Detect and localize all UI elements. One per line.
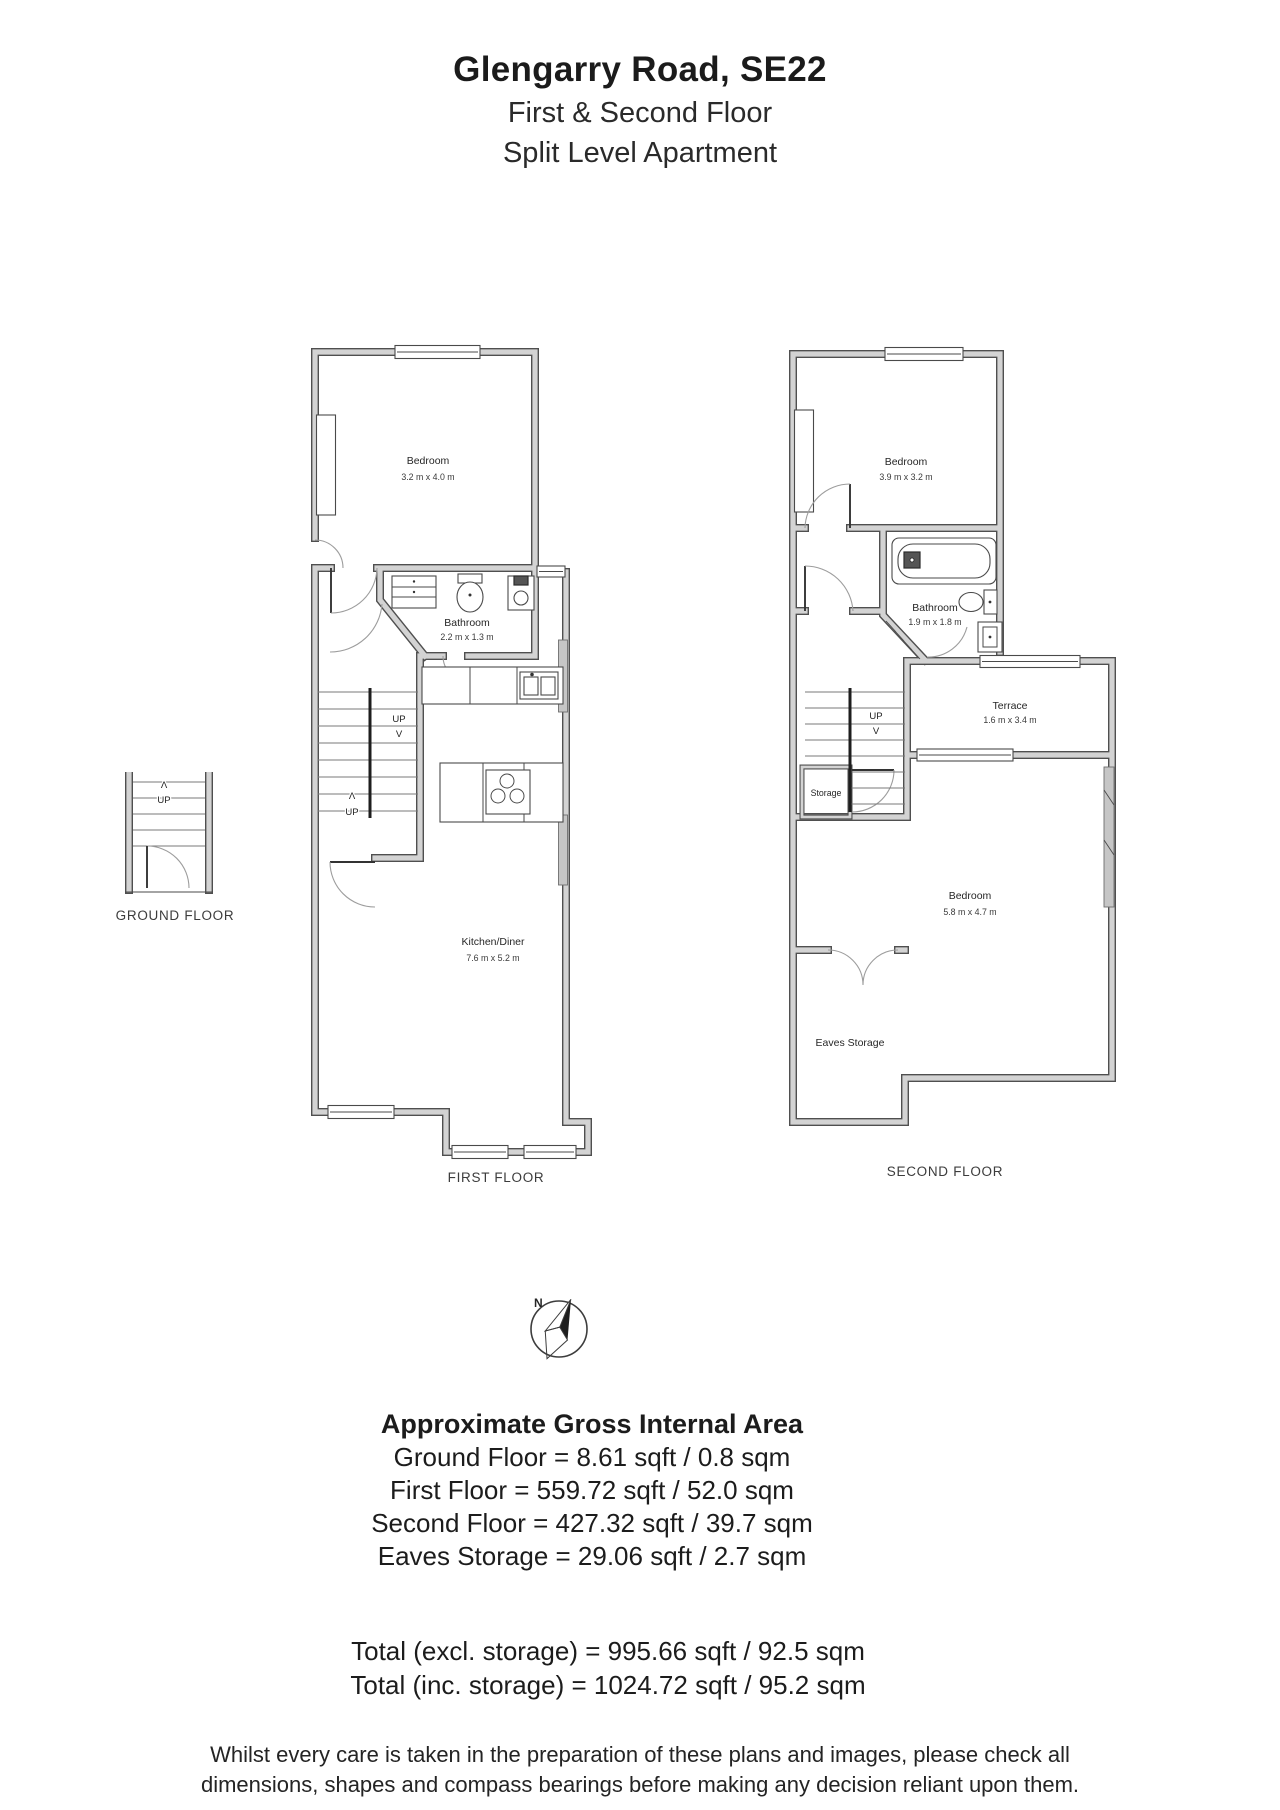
- stairs-up-label: UP: [869, 711, 882, 722]
- floor-plan-second: Bedroom 3.9 m x 3.2 m Bathroom 1.9 m x 1…: [680, 300, 1130, 1180]
- total-inc-storage: Total (inc. storage) = 1024.72 sqft / 95…: [0, 1668, 1216, 1702]
- kitchen-island: [440, 763, 563, 822]
- room-dims-bedroom: 3.2 m x 4.0 m: [401, 472, 454, 482]
- room-label-kitchen: Kitchen/Diner: [461, 936, 525, 948]
- compass-icon: N: [520, 1290, 598, 1368]
- stairs-up-label: UP: [392, 714, 405, 725]
- vanity-icon: [392, 576, 436, 608]
- room-label-storage: Storage: [811, 788, 842, 798]
- wardrobe: [795, 410, 814, 512]
- stairs: [318, 688, 418, 818]
- room-dims-bedroom-front: 3.9 m x 3.2 m: [879, 472, 932, 482]
- stairs: [133, 782, 205, 846]
- stairs-up-label: UP: [157, 795, 170, 806]
- room-dims-terrace: 1.6 m x 3.4 m: [983, 715, 1036, 725]
- first-floor-label: FIRST FLOOR: [448, 1170, 545, 1185]
- eaves-window-slab: [1104, 767, 1114, 907]
- room-label-eaves-storage: Eaves Storage: [816, 1037, 885, 1049]
- kitchen-counter: [422, 667, 563, 704]
- title-block: Glengarry Road, SE22 First & Second Floo…: [0, 50, 1280, 170]
- area-summary-heading: Approximate Gross Internal Area: [0, 1408, 1184, 1441]
- room-dims-kitchen: 7.6 m x 5.2 m: [466, 953, 519, 963]
- sink-icon: [508, 576, 534, 610]
- ground-floor-label: GROUND FLOOR: [116, 908, 235, 923]
- floor-plan-ground: Λ UP: [122, 772, 217, 897]
- area-line-second: Second Floor = 427.32 sqft / 39.7 sqm: [0, 1507, 1184, 1540]
- bathtub-icon: [892, 538, 996, 584]
- stairs-up-label-2: UP: [345, 807, 358, 818]
- disclaimer: Whilst every care is taken in the prepar…: [0, 1740, 1280, 1800]
- room-dims-bathroom: 2.2 m x 1.3 m: [440, 632, 493, 642]
- wardrobe: [317, 415, 336, 515]
- area-line-eaves: Eaves Storage = 29.06 sqft / 2.7 sqm: [0, 1540, 1184, 1573]
- door-arc: [147, 846, 189, 888]
- room-label-bathroom: Bathroom: [444, 617, 490, 629]
- walls: [793, 354, 1112, 1122]
- area-totals: Total (excl. storage) = 995.66 sqft / 92…: [0, 1634, 1216, 1702]
- disclaimer-line-2: dimensions, shapes and compass bearings …: [0, 1770, 1280, 1800]
- stairs-arrow-up: Λ: [161, 780, 168, 791]
- second-floor-label: SECOND FLOOR: [887, 1164, 1003, 1179]
- room-dims-bathroom: 1.9 m x 1.8 m: [908, 617, 961, 627]
- toilet-icon: [959, 590, 997, 614]
- total-excl-storage: Total (excl. storage) = 995.66 sqft / 92…: [0, 1634, 1216, 1668]
- area-line-ground: Ground Floor = 8.61 sqft / 0.8 sqm: [0, 1441, 1184, 1474]
- room-label-bedroom-rear: Bedroom: [949, 890, 992, 902]
- stairs-arrow-down: V: [396, 729, 403, 740]
- room-label-bedroom: Bedroom: [407, 455, 450, 467]
- toilet-icon: [457, 574, 483, 612]
- room-dims-bedroom-rear: 5.8 m x 4.7 m: [943, 907, 996, 917]
- room-label-bathroom: Bathroom: [912, 602, 958, 614]
- cabinet-icon: [978, 622, 1002, 652]
- stairs-arrow-down: V: [873, 726, 880, 737]
- compass-north-label: N: [534, 1296, 543, 1310]
- floorplan-page: Glengarry Road, SE22 First & Second Floo…: [0, 0, 1280, 1810]
- disclaimer-line-1: Whilst every care is taken in the prepar…: [0, 1740, 1280, 1770]
- area-line-first: First Floor = 559.72 sqft / 52.0 sqm: [0, 1474, 1184, 1507]
- walls: [129, 774, 209, 890]
- hob-icon: [486, 770, 530, 814]
- stairs-arrow-up: Λ: [349, 791, 356, 802]
- room-label-bedroom-front: Bedroom: [885, 456, 928, 468]
- page-subtitle-1: First & Second Floor: [0, 97, 1280, 130]
- page-subtitle-2: Split Level Apartment: [0, 137, 1280, 170]
- room-label-terrace: Terrace: [992, 700, 1027, 712]
- page-title: Glengarry Road, SE22: [0, 50, 1280, 90]
- area-summary: Approximate Gross Internal Area Ground F…: [0, 1408, 1184, 1573]
- floor-plan-first: Bedroom 3.2 m x 4.0 m Bathroom 2.2 m x 1…: [270, 300, 600, 1180]
